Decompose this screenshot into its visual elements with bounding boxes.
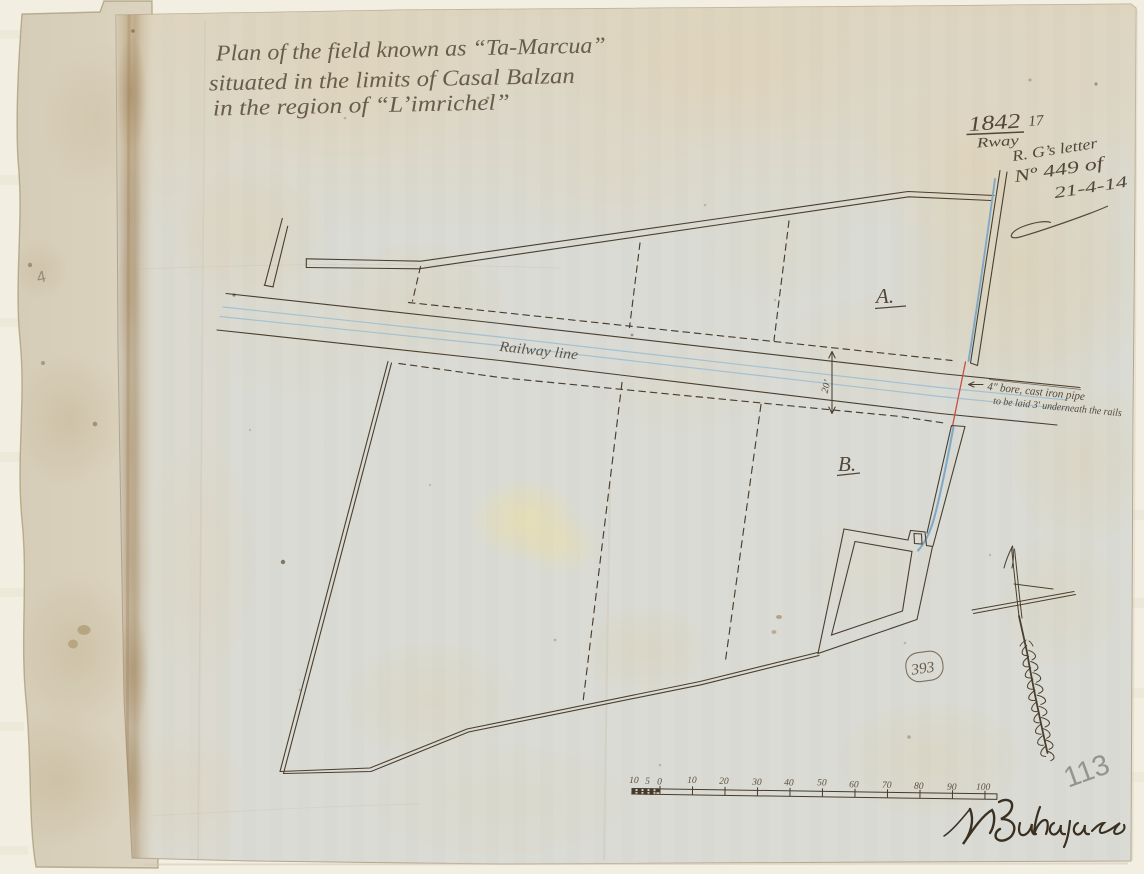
svg-text:5: 5	[645, 777, 650, 787]
svg-text:50: 50	[817, 778, 827, 788]
svg-text:10: 10	[629, 776, 639, 786]
svg-text:30: 30	[751, 778, 762, 788]
svg-text:A.: A.	[874, 284, 894, 308]
svg-text:100: 100	[976, 783, 991, 793]
svg-text:393: 393	[909, 659, 936, 679]
svg-text:20: 20	[719, 777, 729, 787]
svg-text:90: 90	[947, 783, 957, 793]
svg-text:17: 17	[1028, 113, 1046, 130]
svg-text:80: 80	[914, 782, 924, 792]
svg-text:70: 70	[882, 781, 892, 791]
svg-text:B.: B.	[838, 452, 856, 476]
svg-text:60: 60	[849, 780, 859, 790]
svg-text:10: 10	[687, 776, 697, 786]
svg-text:40: 40	[784, 778, 794, 788]
svg-text:0: 0	[657, 777, 662, 787]
